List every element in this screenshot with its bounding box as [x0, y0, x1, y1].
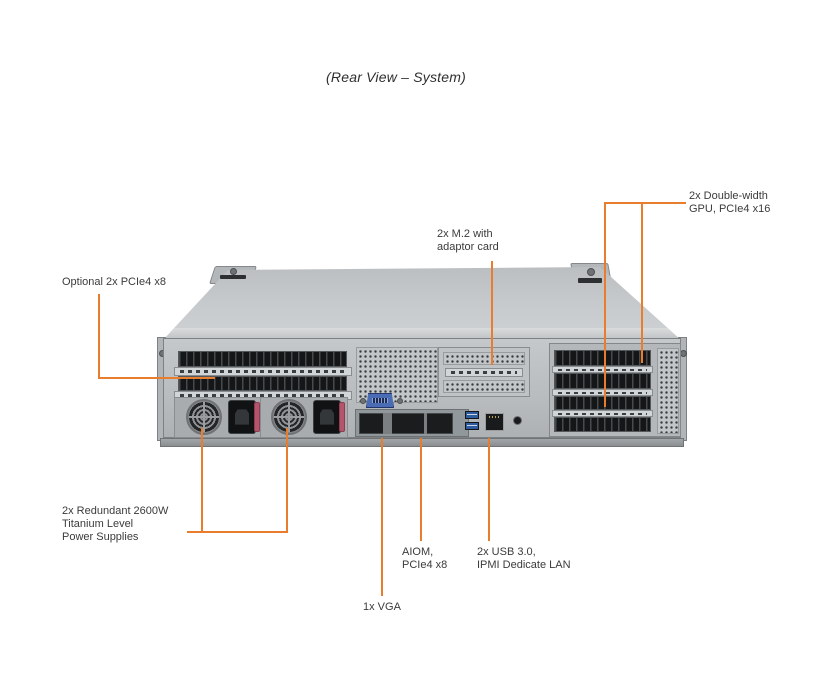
- m2-adaptor-bracket: [438, 347, 530, 397]
- label-aiom: AIOM, PCIe4 x8: [402, 546, 447, 572]
- callout-line-psu-v2: [286, 428, 288, 533]
- callout-line-optional-pcie-h: [98, 377, 215, 379]
- ipmi-lan-port: [485, 413, 504, 431]
- vga-screw-right: [397, 398, 403, 404]
- psu-divider: [260, 397, 261, 438]
- ear-screw-right: [587, 268, 595, 276]
- callout-line-gpu-v1: [604, 202, 606, 407]
- gpu-slot-cover-3: [552, 410, 653, 417]
- label-psu-line2: Titanium Level: [62, 518, 168, 531]
- gpu-slot-cover-2: [552, 389, 653, 396]
- gpu-slot-opening-2: [554, 373, 651, 389]
- gpu-slot-section: [549, 343, 681, 437]
- label-aiom-line2: PCIe4 x8: [402, 559, 447, 572]
- label-vga: 1x VGA: [363, 601, 401, 614]
- callout-line-psu-h: [187, 531, 288, 533]
- diagram-title: (Rear View – System): [0, 69, 792, 85]
- psu2-power-inlet: [313, 400, 341, 434]
- gpu-slot-opening-1: [554, 350, 651, 366]
- id-button-hole: [513, 416, 522, 425]
- callout-line-gpu-h: [604, 202, 686, 204]
- label-usb-lan-line2: IPMI Dedicate LAN: [477, 559, 571, 572]
- chassis-base: [160, 438, 684, 447]
- psu1-power-inlet: [228, 400, 256, 434]
- callout-line-gpu-v2: [641, 202, 643, 363]
- callout-line-optional-pcie-v: [98, 294, 100, 379]
- label-m2-line2: adaptor card: [437, 241, 499, 254]
- pcie-slot-cover-1: [174, 367, 352, 376]
- psu2-release-lever: [339, 402, 345, 432]
- gpu-slot-opening-4: [554, 417, 651, 432]
- aiom-openings: [359, 413, 453, 434]
- label-m2: 2x M.2 with adaptor card: [437, 228, 499, 254]
- label-aiom-line1: AIOM,: [402, 546, 447, 559]
- callout-line-usb: [488, 438, 490, 541]
- label-optional-pcie-text: Optional 2x PCIe4 x8: [62, 276, 166, 288]
- m2-vent-bottom: [443, 380, 525, 393]
- rear-view-diagram: (Rear View – System): [0, 0, 816, 694]
- label-gpu-line1: 2x Double-width: [689, 190, 770, 203]
- label-gpu: 2x Double-width GPU, PCIe4 x16: [689, 190, 770, 216]
- label-gpu-line2: GPU, PCIe4 x16: [689, 203, 770, 216]
- flange-screw-right: [680, 350, 687, 357]
- psu1-fan-grille: [186, 399, 222, 435]
- gpu-slot-opening-3: [554, 396, 651, 410]
- m2-vent-top: [443, 352, 525, 365]
- label-psu-line3: Power Supplies: [62, 531, 168, 544]
- label-m2-line1: 2x M.2 with: [437, 228, 499, 241]
- label-psu: 2x Redundant 2600W Titanium Level Power …: [62, 505, 168, 544]
- vga-screw-left: [360, 398, 366, 404]
- vent-column-right: [657, 348, 679, 434]
- label-psu-line1: 2x Redundant 2600W: [62, 505, 168, 518]
- pcie-slot-opening-1: [178, 351, 347, 367]
- psu2-fan-grille: [271, 399, 307, 435]
- label-vga-text: 1x VGA: [363, 601, 401, 613]
- label-usb-lan-line1: 2x USB 3.0,: [477, 546, 571, 559]
- callout-line-m2: [491, 261, 493, 365]
- aiom-slot-bracket: [355, 409, 469, 437]
- callout-line-vga: [381, 438, 383, 596]
- ear-screw-left: [230, 268, 237, 275]
- ear-latch-slot-right: [578, 278, 602, 283]
- label-usb-lan: 2x USB 3.0, IPMI Dedicate LAN: [477, 546, 571, 572]
- label-optional-pcie: Optional 2x PCIe4 x8: [62, 276, 166, 289]
- vga-port: [366, 393, 394, 408]
- usb3-port-bottom: [465, 422, 479, 430]
- callout-line-aiom: [420, 438, 422, 541]
- usb3-port-top: [465, 411, 479, 419]
- aiom-separator-1: [383, 413, 392, 434]
- m2-slot-cover: [445, 368, 523, 377]
- ear-latch-slot-left: [220, 275, 246, 279]
- aiom-separator-2: [424, 413, 427, 434]
- gpu-slot-cover-1: [552, 366, 653, 373]
- callout-line-psu-v1: [201, 428, 203, 533]
